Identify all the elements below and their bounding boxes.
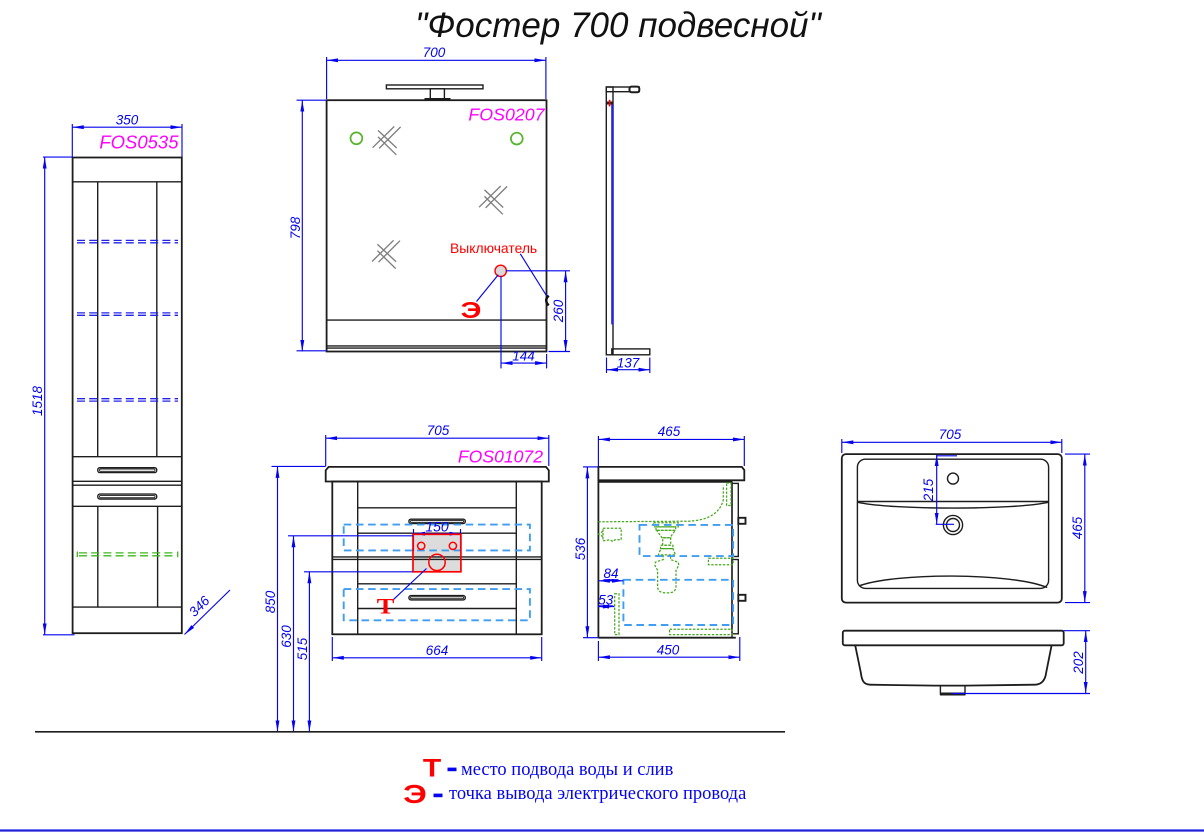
svg-text:FOS01072: FOS01072 (458, 447, 543, 467)
svg-text:FOS0535: FOS0535 (99, 132, 179, 153)
svg-text:202: 202 (1071, 651, 1086, 675)
svg-text:664: 664 (426, 643, 449, 658)
svg-text:"Фостер 700 подвесной": "Фостер 700 подвесной" (415, 6, 822, 45)
svg-text:150: 150 (425, 519, 449, 535)
svg-text:350: 350 (116, 113, 139, 128)
svg-text:798: 798 (288, 216, 303, 239)
svg-text:Выключатель: Выключатель (450, 240, 537, 256)
svg-text:1518: 1518 (30, 385, 45, 416)
svg-text:700: 700 (423, 45, 446, 60)
svg-text:84: 84 (603, 566, 618, 581)
svg-text:260: 260 (551, 299, 566, 323)
svg-text:137: 137 (617, 355, 640, 370)
svg-text:465: 465 (1070, 516, 1085, 539)
svg-text:515: 515 (295, 637, 310, 660)
svg-text:450: 450 (657, 643, 680, 658)
svg-text:Э: Э (403, 780, 427, 809)
svg-text:Т: Т (423, 754, 441, 782)
svg-text:630: 630 (279, 625, 294, 648)
svg-text:144: 144 (512, 349, 535, 364)
svg-text:346: 346 (186, 593, 213, 620)
svg-text:465: 465 (658, 424, 681, 439)
svg-text:536: 536 (573, 537, 588, 560)
svg-text:215: 215 (921, 478, 936, 502)
svg-text:Э: Э (461, 297, 482, 323)
svg-text:точка вывода электрического пр: точка вывода электрического провода (449, 784, 746, 804)
svg-text:705: 705 (427, 423, 450, 438)
svg-text:FOS0207: FOS0207 (468, 105, 545, 125)
svg-text:850: 850 (263, 590, 278, 613)
svg-text:705: 705 (939, 427, 962, 442)
svg-text:место подвода воды и слив: место подвода воды и слив (461, 760, 674, 780)
svg-text:53: 53 (598, 592, 614, 607)
svg-text:Т: Т (377, 594, 395, 618)
